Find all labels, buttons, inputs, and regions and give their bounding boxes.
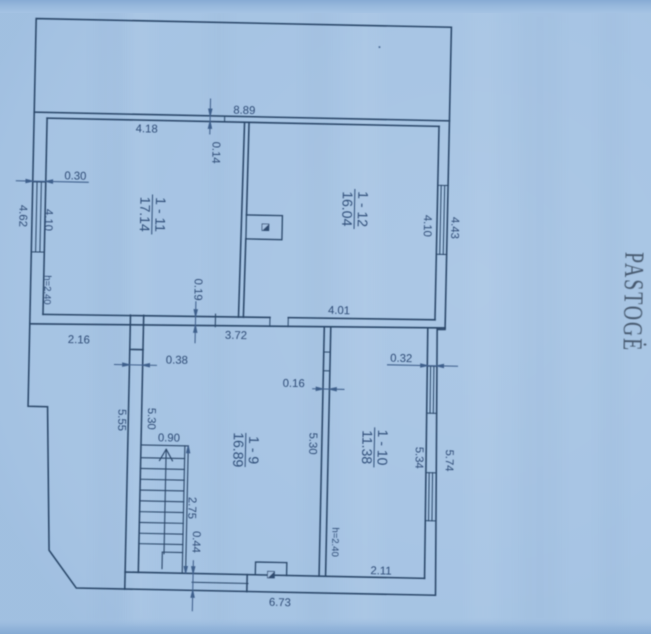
svg-text:0.16: 0.16 [283, 378, 305, 390]
svg-text:4.43: 4.43 [448, 217, 460, 239]
svg-text:1 - 12: 1 - 12 [355, 191, 372, 227]
svg-text:5.30: 5.30 [145, 408, 157, 430]
svg-text:8.89: 8.89 [233, 105, 255, 117]
svg-text:5.55: 5.55 [115, 409, 127, 431]
svg-text:4.18: 4.18 [136, 123, 158, 135]
svg-text:4.10: 4.10 [421, 215, 433, 237]
svg-text:PASTOGĖ: PASTOGĖ [617, 252, 649, 353]
svg-text:4.10: 4.10 [42, 209, 54, 231]
svg-text:16.89: 16.89 [230, 432, 247, 468]
svg-text:5.30: 5.30 [306, 432, 318, 454]
svg-text:17.14: 17.14 [137, 197, 154, 233]
svg-text:11.38: 11.38 [359, 430, 376, 465]
svg-text:1 - 10: 1 - 10 [374, 429, 391, 465]
svg-text:0.19: 0.19 [191, 278, 203, 300]
svg-text:2.75: 2.75 [185, 497, 197, 519]
svg-text:0.32: 0.32 [390, 353, 412, 365]
svg-text:16.04: 16.04 [339, 191, 356, 227]
svg-text:5.34: 5.34 [412, 447, 424, 469]
svg-text:2.16: 2.16 [68, 334, 90, 346]
svg-text:2.11: 2.11 [370, 565, 391, 577]
svg-text:0.30: 0.30 [64, 170, 86, 182]
svg-text:6.73: 6.73 [269, 597, 291, 609]
svg-text:1 - 9: 1 - 9 [246, 436, 263, 465]
svg-text:4.01: 4.01 [328, 305, 350, 317]
svg-text:h=2.40: h=2.40 [329, 527, 341, 557]
svg-text:0.38: 0.38 [166, 354, 188, 366]
svg-text:h=2.40: h=2.40 [41, 275, 53, 305]
svg-text:1 - 11: 1 - 11 [152, 197, 169, 232]
svg-text:0.44: 0.44 [190, 531, 202, 553]
svg-text:4.62: 4.62 [16, 205, 28, 227]
svg-text:5.74: 5.74 [443, 449, 455, 471]
svg-text:3.72: 3.72 [225, 330, 247, 342]
svg-text:0.90: 0.90 [158, 432, 180, 444]
svg-text:0.14: 0.14 [209, 142, 221, 164]
